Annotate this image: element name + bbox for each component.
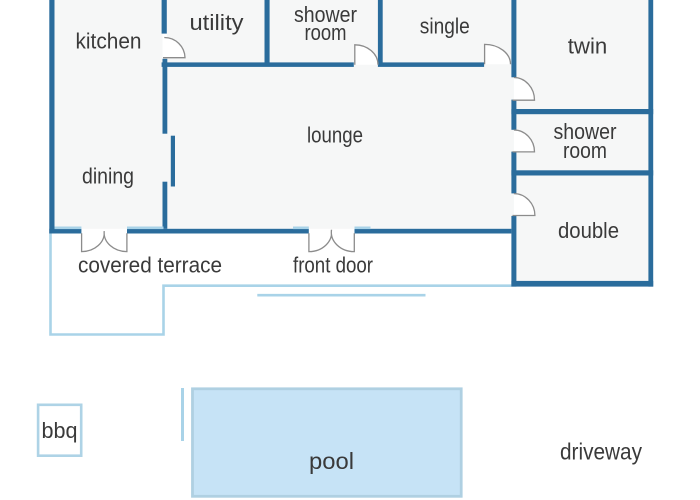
svg-text:lounge: lounge bbox=[307, 123, 363, 148]
svg-text:kitchen: kitchen bbox=[76, 29, 142, 54]
svg-text:utility: utility bbox=[190, 10, 244, 35]
svg-text:bbq: bbq bbox=[42, 418, 78, 443]
svg-text:dining: dining bbox=[82, 164, 134, 189]
svg-text:driveway: driveway bbox=[560, 439, 642, 465]
svg-text:pool: pool bbox=[309, 448, 354, 474]
svg-text:double: double bbox=[558, 218, 619, 243]
svg-text:covered terrace: covered terrace bbox=[78, 253, 222, 278]
svg-text:room: room bbox=[563, 138, 607, 163]
svg-text:single: single bbox=[420, 13, 470, 38]
svg-text:front door: front door bbox=[293, 253, 373, 278]
svg-text:room: room bbox=[305, 20, 347, 45]
svg-text:twin: twin bbox=[568, 34, 608, 59]
